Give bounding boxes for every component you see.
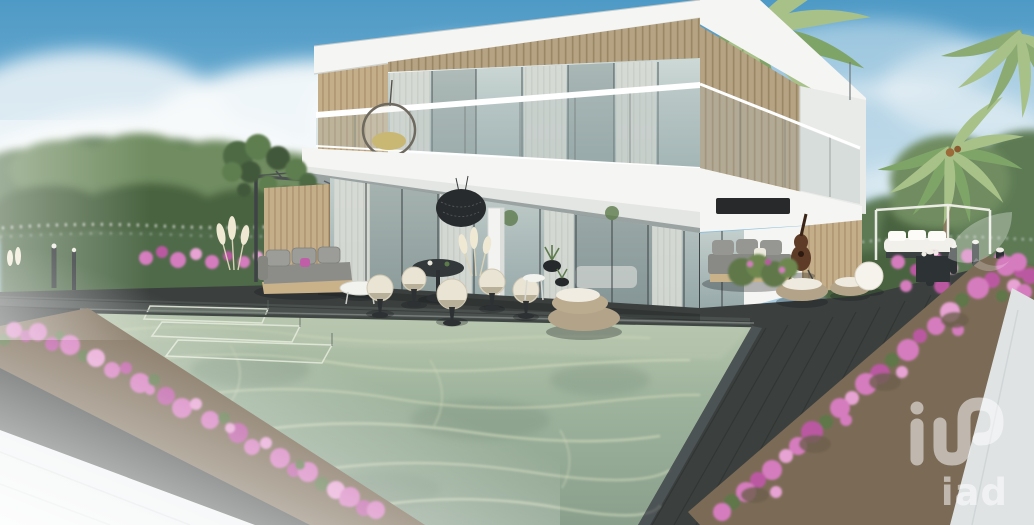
sphere-floor-lamp (855, 262, 883, 290)
slab-dark-vent (716, 198, 790, 214)
watermark-text: iad (941, 471, 1008, 514)
interior-wall-plant-2 (605, 206, 619, 220)
interior-sofa-hint (575, 266, 637, 288)
render-canvas: iad (0, 0, 1034, 525)
logo-i-dot (911, 402, 924, 415)
villa-render-image: iad (0, 0, 1034, 525)
